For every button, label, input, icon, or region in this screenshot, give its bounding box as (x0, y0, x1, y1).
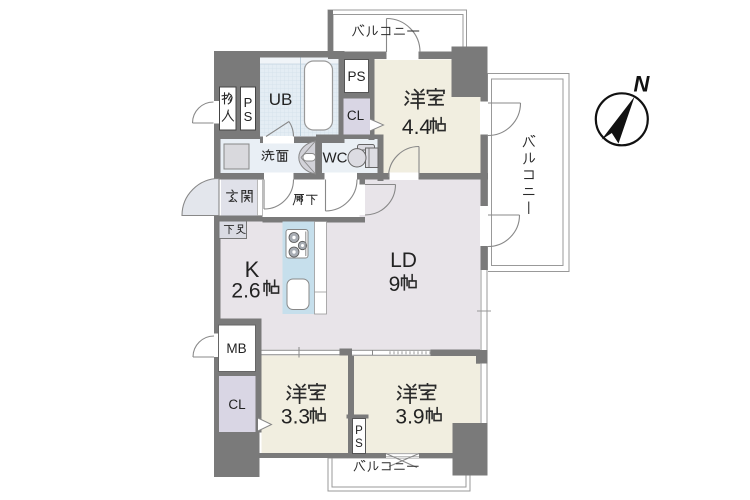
svg-text:LD: LD (390, 249, 417, 272)
svg-text:S: S (244, 109, 253, 124)
svg-text:PS: PS (347, 69, 365, 84)
svg-text:UB: UB (269, 90, 293, 109)
svg-text:CL: CL (228, 397, 246, 412)
svg-text:K: K (245, 257, 260, 282)
svg-text:MB: MB (226, 341, 246, 356)
svg-text:WC: WC (323, 150, 348, 167)
svg-text:N: N (634, 72, 651, 97)
svg-text:P: P (244, 95, 253, 110)
svg-text:9: 9 (389, 273, 401, 296)
svg-text:P: P (355, 425, 363, 437)
svg-text:2.6: 2.6 (231, 280, 260, 303)
svg-text:3.3: 3.3 (281, 406, 310, 429)
svg-text:4.4: 4.4 (402, 116, 432, 139)
svg-text:S: S (355, 438, 363, 450)
svg-text:3.9: 3.9 (395, 406, 424, 429)
svg-text:CL: CL (347, 108, 365, 123)
